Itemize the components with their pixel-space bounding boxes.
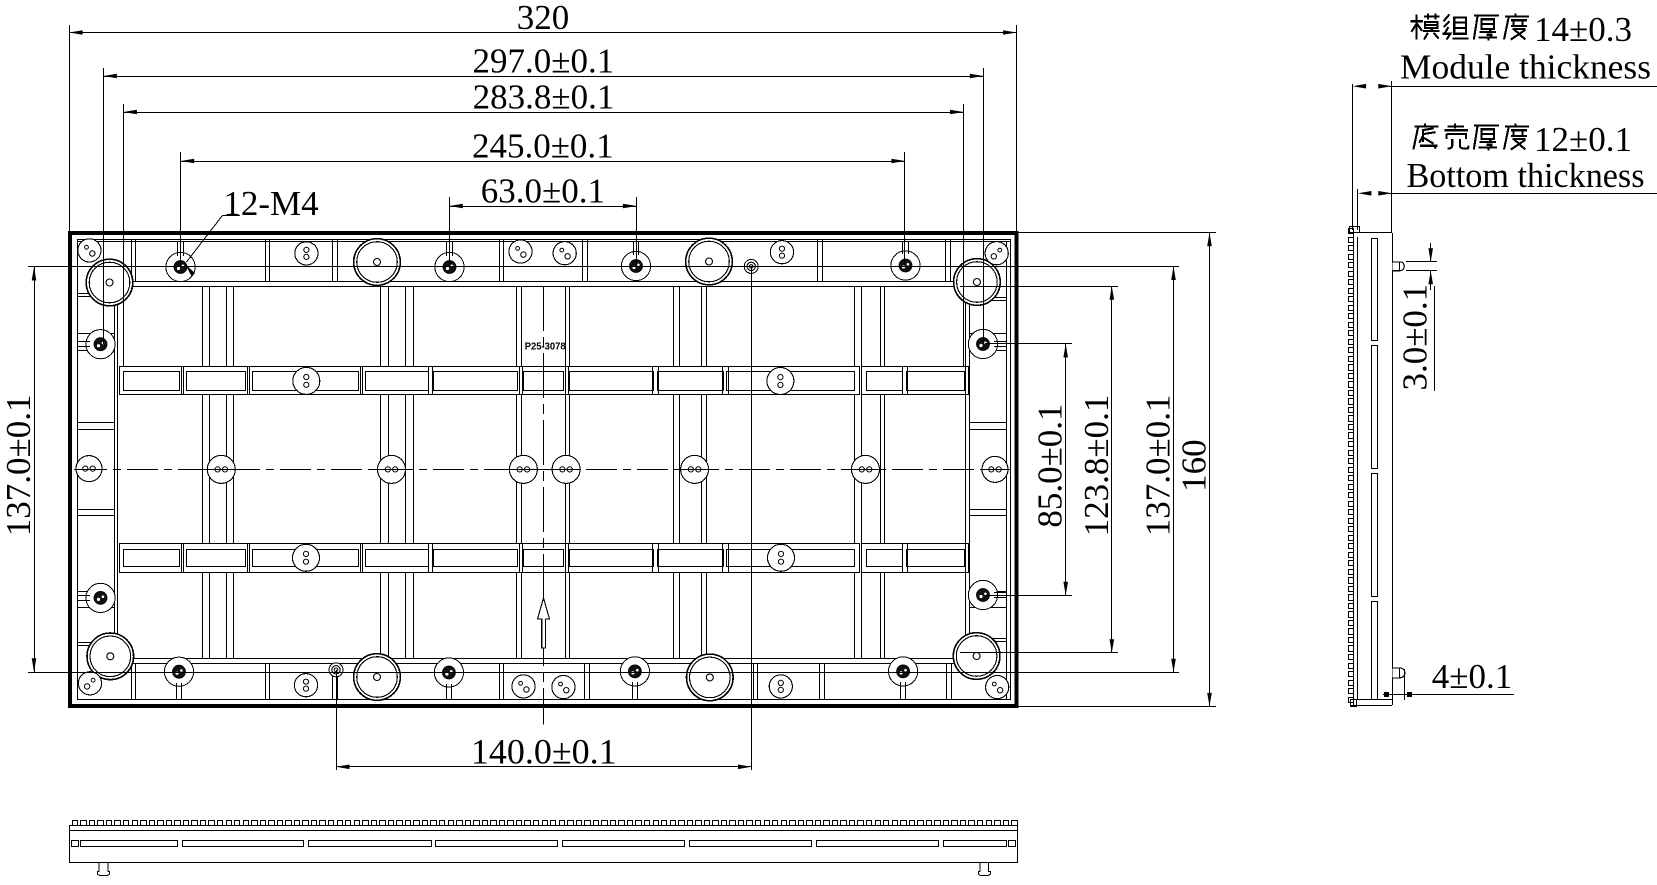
svg-text:3.0±0.1: 3.0±0.1 xyxy=(1396,284,1435,391)
svg-text:P25-3078: P25-3078 xyxy=(525,341,566,353)
svg-text:12±0.1: 12±0.1 xyxy=(1534,120,1632,159)
svg-text:4±0.1: 4±0.1 xyxy=(1432,657,1512,696)
svg-text:283.8±0.1: 283.8±0.1 xyxy=(473,78,615,117)
svg-text:Module thickness: Module thickness xyxy=(1400,48,1651,87)
svg-text:140.0±0.1: 140.0±0.1 xyxy=(471,731,617,771)
svg-text:297.0±0.1: 297.0±0.1 xyxy=(472,42,614,81)
svg-text:63.0±0.1: 63.0±0.1 xyxy=(481,172,605,211)
svg-text:137.0±0.1: 137.0±0.1 xyxy=(0,395,38,537)
svg-text:12-M4: 12-M4 xyxy=(223,184,318,223)
svg-text:160: 160 xyxy=(1175,439,1214,492)
svg-text:123.8±0.1: 123.8±0.1 xyxy=(1077,395,1116,537)
svg-text:85.0±0.1: 85.0±0.1 xyxy=(1031,403,1070,527)
svg-text:245.0±0.1: 245.0±0.1 xyxy=(472,127,614,166)
svg-text:14±0.3: 14±0.3 xyxy=(1534,10,1632,49)
svg-text:320: 320 xyxy=(517,0,570,37)
svg-text:137.0±0.1: 137.0±0.1 xyxy=(1139,395,1178,537)
svg-text:Bottom thickness: Bottom thickness xyxy=(1407,156,1645,195)
